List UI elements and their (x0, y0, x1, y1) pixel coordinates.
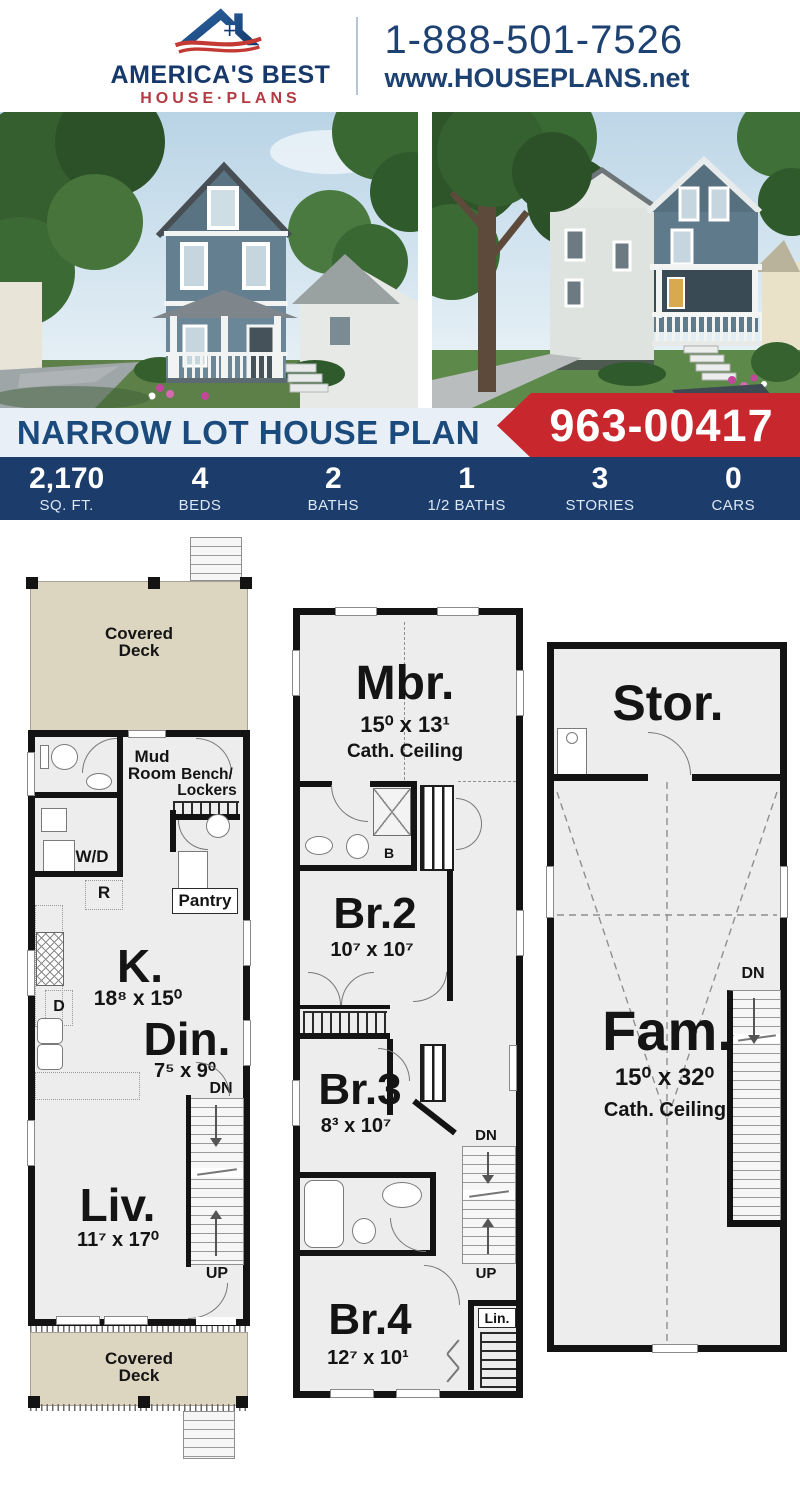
closet-hatch (420, 785, 454, 871)
linen-closet-hatch (480, 1332, 516, 1388)
exterior-photos (0, 112, 800, 408)
stat-beds-value: 4 (192, 464, 209, 494)
shower (373, 788, 411, 836)
stat-beds-label: BEDS (179, 498, 222, 513)
stair-label-up-2: UP (463, 1266, 509, 1281)
house-plan-pin: AMERICA'S BEST HOUSE·PLANS 1-888-501-752… (0, 0, 800, 1497)
hall-stairs (462, 1146, 516, 1264)
master-bath-sink (305, 836, 333, 855)
stat-halfbaths-value: 1 (458, 464, 475, 494)
room-label-living: Liv. (70, 1182, 165, 1229)
stat-baths-label: BATHS (308, 498, 359, 513)
toilet-bowl (51, 744, 78, 770)
header-divider (356, 17, 358, 95)
front-exterior-photo (0, 112, 418, 408)
room-label-br2: Br.2 (325, 892, 425, 937)
plan-number: 963-00417 (523, 400, 773, 452)
stat-halfbaths-label: 1/2 BATHS (427, 498, 505, 513)
room-note-master-ceiling: Cath. Ceiling (330, 742, 480, 761)
room-label-pantry: Pantry (172, 888, 238, 914)
website-link[interactable]: www.HOUSEPLANS.net (384, 64, 689, 92)
laundry-sink (41, 808, 67, 832)
room-label-bath: B (378, 846, 400, 860)
brand-tagline: HOUSE·PLANS (140, 91, 300, 107)
stat-baths-value: 2 (325, 464, 342, 494)
powder-toilet (206, 814, 230, 838)
room-label-kitchen: K. (98, 943, 182, 990)
closet-rod-hatch (303, 1011, 387, 1033)
deck-exit-stairs (183, 1411, 235, 1459)
floor-plans: Covered Deck Mud Room Bench/ Lockers W/ (0, 520, 800, 1497)
master-bath-toilet (346, 834, 369, 859)
brand-name: AMERICA'S BEST (111, 63, 331, 88)
room-dims-br4: 12⁷ x 10¹ (306, 1348, 430, 1368)
stat-stories: 3 STORIES (533, 457, 666, 520)
plan-title: NARROW LOT HOUSE PLAN (0, 408, 497, 457)
phone-link[interactable]: 1-888-501-7526 (384, 19, 689, 61)
bathtub (304, 1180, 344, 1248)
room-label-fridge: R (85, 884, 123, 901)
plan-number-ribbon: 963-00417 (497, 393, 800, 458)
room-dims-family: 15⁰ x 32⁰ (597, 1066, 732, 1090)
room-dims-br3: 8³ x 10⁷ (306, 1116, 406, 1136)
room-label-br3: Br.3 (310, 1068, 410, 1113)
brand-logo: AMERICA'S BEST HOUSE·PLANS (111, 5, 331, 107)
room-dims-dining: 7⁵ x 9⁰ (125, 1061, 245, 1081)
house-logo-icon (172, 5, 268, 61)
room-label-storage: Stor. (600, 678, 736, 729)
room-label-linen: Lin. (478, 1308, 516, 1328)
stair-winder-hatch (420, 1044, 446, 1102)
room-label-br4: Br.4 (318, 1298, 422, 1343)
room-label-wd: W/D (66, 848, 118, 865)
room-label-master: Mbr. (350, 660, 460, 709)
range (36, 932, 64, 986)
stat-beds: 4 BEDS (133, 457, 266, 520)
room-dims-kitchen: 18⁸ x 15⁰ (76, 988, 200, 1009)
stat-stories-label: STORIES (565, 498, 634, 513)
stair-label-dn-3: DN (730, 966, 776, 982)
room-dims-living: 11⁷ x 17⁰ (56, 1230, 180, 1250)
stat-sqft-value: 2,170 (29, 464, 104, 494)
stat-cars-value: 0 (725, 464, 742, 494)
deck-entry-stairs (190, 537, 242, 581)
room-label-deck-top: Covered Deck (69, 625, 209, 660)
hall-bath-toilet (352, 1218, 376, 1244)
main-stairs (190, 1098, 244, 1265)
kitchen-sink-1 (37, 1018, 63, 1044)
kitchen-sink-2 (37, 1044, 63, 1070)
bath-sink (86, 773, 112, 790)
storage-sink-drain (566, 732, 578, 744)
header: AMERICA'S BEST HOUSE·PLANS 1-888-501-752… (0, 0, 800, 112)
room-note-family-ceiling: Cath. Ceiling (590, 1100, 740, 1120)
stat-cars: 0 CARS (667, 457, 800, 520)
room-label-family: Fam. (595, 1002, 740, 1059)
stat-stories-value: 3 (592, 464, 609, 494)
room-label-bench-lockers: Bench/ Lockers (172, 767, 242, 799)
stat-sqft: 2,170 SQ. FT. (0, 457, 133, 520)
kitchen-peninsula (35, 1072, 140, 1100)
stat-sqft-label: SQ. FT. (39, 498, 93, 513)
toilet-tank (40, 745, 49, 769)
room-label-dining: Din. (140, 1016, 234, 1063)
stair-label-dn-2: DN (463, 1128, 509, 1143)
stat-halfbaths: 1 1/2 BATHS (400, 457, 533, 520)
stat-baths: 2 BATHS (267, 457, 400, 520)
room-label-dishwasher: D (45, 999, 73, 1015)
contact-block: 1-888-501-7526 www.HOUSEPLANS.net (384, 19, 689, 92)
room-label-deck-bottom: Covered Deck (69, 1350, 209, 1385)
stats-bar: 2,170 SQ. FT. 4 BEDS 2 BATHS 1 1/2 BATHS… (0, 457, 800, 520)
room-dims-br2: 10⁷ x 10⁷ (312, 940, 432, 960)
lockers-hatch (173, 801, 239, 814)
stair-label-up-1: UP (194, 1266, 240, 1282)
room-dims-master: 15⁰ x 13¹ (338, 714, 472, 736)
hall-bath-sink (382, 1182, 422, 1208)
rear-exterior-photo (432, 112, 800, 408)
stat-cars-label: CARS (711, 498, 755, 513)
